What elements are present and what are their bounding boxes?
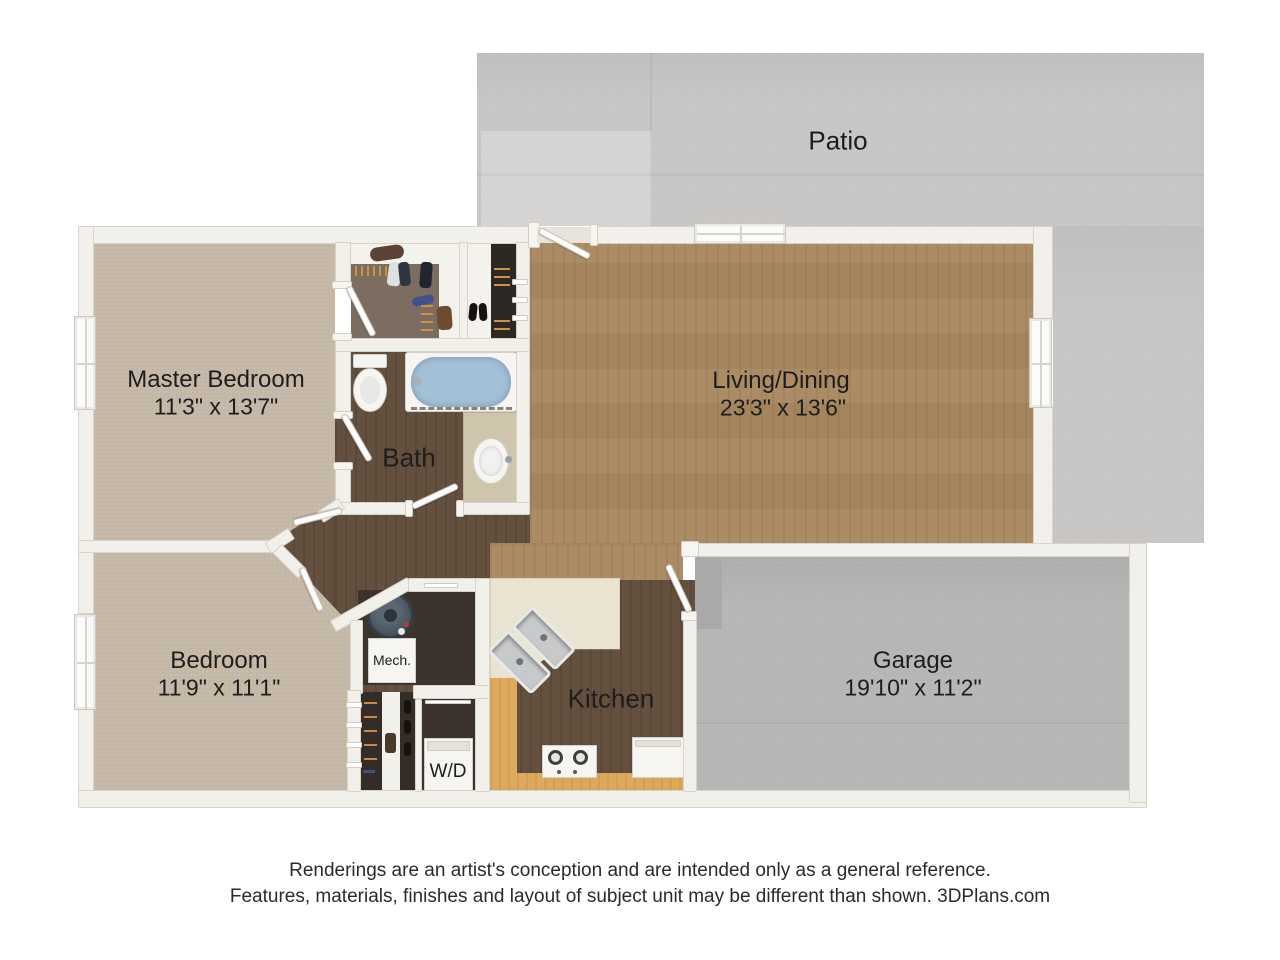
window-living-top xyxy=(694,223,786,244)
shoes xyxy=(478,303,487,322)
vanity-sink-bowl xyxy=(479,446,503,476)
wall-bottom xyxy=(78,790,1147,808)
bedroom-closet-bifold-tick xyxy=(346,762,362,768)
water-heater-core xyxy=(384,609,397,622)
garage-door-post-top xyxy=(681,541,699,557)
shoes xyxy=(404,700,411,714)
dishwasher-top xyxy=(635,740,681,747)
room-label-patio: Patio xyxy=(808,126,867,157)
wall-mech-left xyxy=(350,620,363,694)
patio-seam xyxy=(478,174,1204,176)
garage-stoop xyxy=(695,557,722,629)
wall-bath-bottom-b xyxy=(459,502,530,515)
tub-faucet xyxy=(413,377,422,386)
bedroom-closet-bifold-tick xyxy=(346,702,362,708)
footer-disclaimer-line2: Features, materials, finishes and layout… xyxy=(230,886,1050,908)
room-dims-garage: 19'10" x 11'2" xyxy=(844,675,981,702)
garage-seam xyxy=(695,722,1129,724)
stored-item xyxy=(385,733,396,753)
hanger-row xyxy=(494,268,510,270)
hanger-row xyxy=(364,702,377,704)
room-label-bath: Bath xyxy=(382,443,436,474)
hall-closet-dark xyxy=(491,244,516,348)
closet-door-post xyxy=(332,333,352,341)
duffel-bag xyxy=(436,306,453,331)
room-label-mech: Mech. xyxy=(373,652,411,668)
wall-master-bottom xyxy=(78,540,278,553)
hall-bath-post xyxy=(456,500,464,517)
toilet-seat xyxy=(360,376,380,404)
wall-closet-divider xyxy=(459,242,468,352)
wall-top-a xyxy=(78,226,537,244)
hanger-row xyxy=(355,266,357,276)
bath-door-post xyxy=(333,462,353,470)
hall-closet-bifold-tick xyxy=(512,297,528,303)
vanity-faucet xyxy=(505,456,512,463)
footer-disclaimer-line1: Renderings are an artist's conception an… xyxy=(289,860,991,882)
room-label-bedroom: Bedroom xyxy=(170,647,267,675)
bathtub-water xyxy=(411,357,511,407)
wall-closet-laundry-divider xyxy=(415,699,422,792)
stove-burner xyxy=(573,750,588,765)
valve-red xyxy=(404,622,409,627)
bedroom-closet-bifold-tick xyxy=(346,722,362,728)
room-dims-master: 11'3" x 13'7" xyxy=(154,394,278,421)
patio-panel xyxy=(481,131,652,226)
room-dims-bedroom: 11'9" x 11'1" xyxy=(158,675,281,702)
wall-left-a xyxy=(78,226,94,318)
toilet-tank xyxy=(353,354,387,368)
wall-garage-right xyxy=(1129,543,1147,803)
stove-burner xyxy=(548,750,563,765)
room-label-garage: Garage xyxy=(873,647,953,675)
window-living-right xyxy=(1029,318,1052,408)
hanger-col xyxy=(421,305,433,307)
kitchen-cabinet-left xyxy=(490,678,517,775)
entry-post xyxy=(590,224,598,246)
wall-mech-laundry-divider xyxy=(413,685,490,699)
room-label-master: Master Bedroom xyxy=(127,366,304,394)
room-label-wd: W/D xyxy=(430,761,467,783)
wall-garage-left xyxy=(683,615,697,792)
room-label-kitchen: Kitchen xyxy=(568,684,655,715)
hall-closet-bifold-tick xyxy=(512,279,528,285)
garment xyxy=(398,261,411,286)
wall-garage-top xyxy=(683,543,1147,557)
hall-closet-bifold-tick xyxy=(512,315,528,321)
window-master-left xyxy=(74,316,96,410)
floor-plan: Patio Master Bedroom 11'3" x 13'7" Livin… xyxy=(0,0,1280,960)
bedroom-closet-bifold-tick xyxy=(346,742,362,748)
stove-knobs xyxy=(557,770,561,774)
garment xyxy=(419,262,433,289)
garment-blue xyxy=(363,770,375,773)
washer-dryer-top xyxy=(427,741,470,751)
wall-closets-bottom xyxy=(335,338,530,352)
room-dims-living: 23'3" x 13'6" xyxy=(720,395,846,422)
garage-door-post xyxy=(681,611,697,621)
wall-top-c xyxy=(785,226,1035,244)
shower-door-track xyxy=(411,407,512,410)
patio-floor-side xyxy=(1053,226,1204,543)
patio-seam-v xyxy=(650,53,652,226)
window-bedroom-left xyxy=(74,614,96,710)
wall-living-right-a xyxy=(1033,226,1053,320)
wall-left-b xyxy=(78,408,94,614)
valve-white xyxy=(398,628,405,635)
room-label-living: Living/Dining xyxy=(712,367,849,395)
laundry-door-slab xyxy=(425,700,471,704)
wall-living-right-b xyxy=(1033,406,1053,555)
wall-top-b xyxy=(591,226,697,244)
mech-door-slab xyxy=(424,583,458,588)
living-floor-ext xyxy=(490,543,683,580)
wall-bath-bottom-a xyxy=(335,502,412,515)
